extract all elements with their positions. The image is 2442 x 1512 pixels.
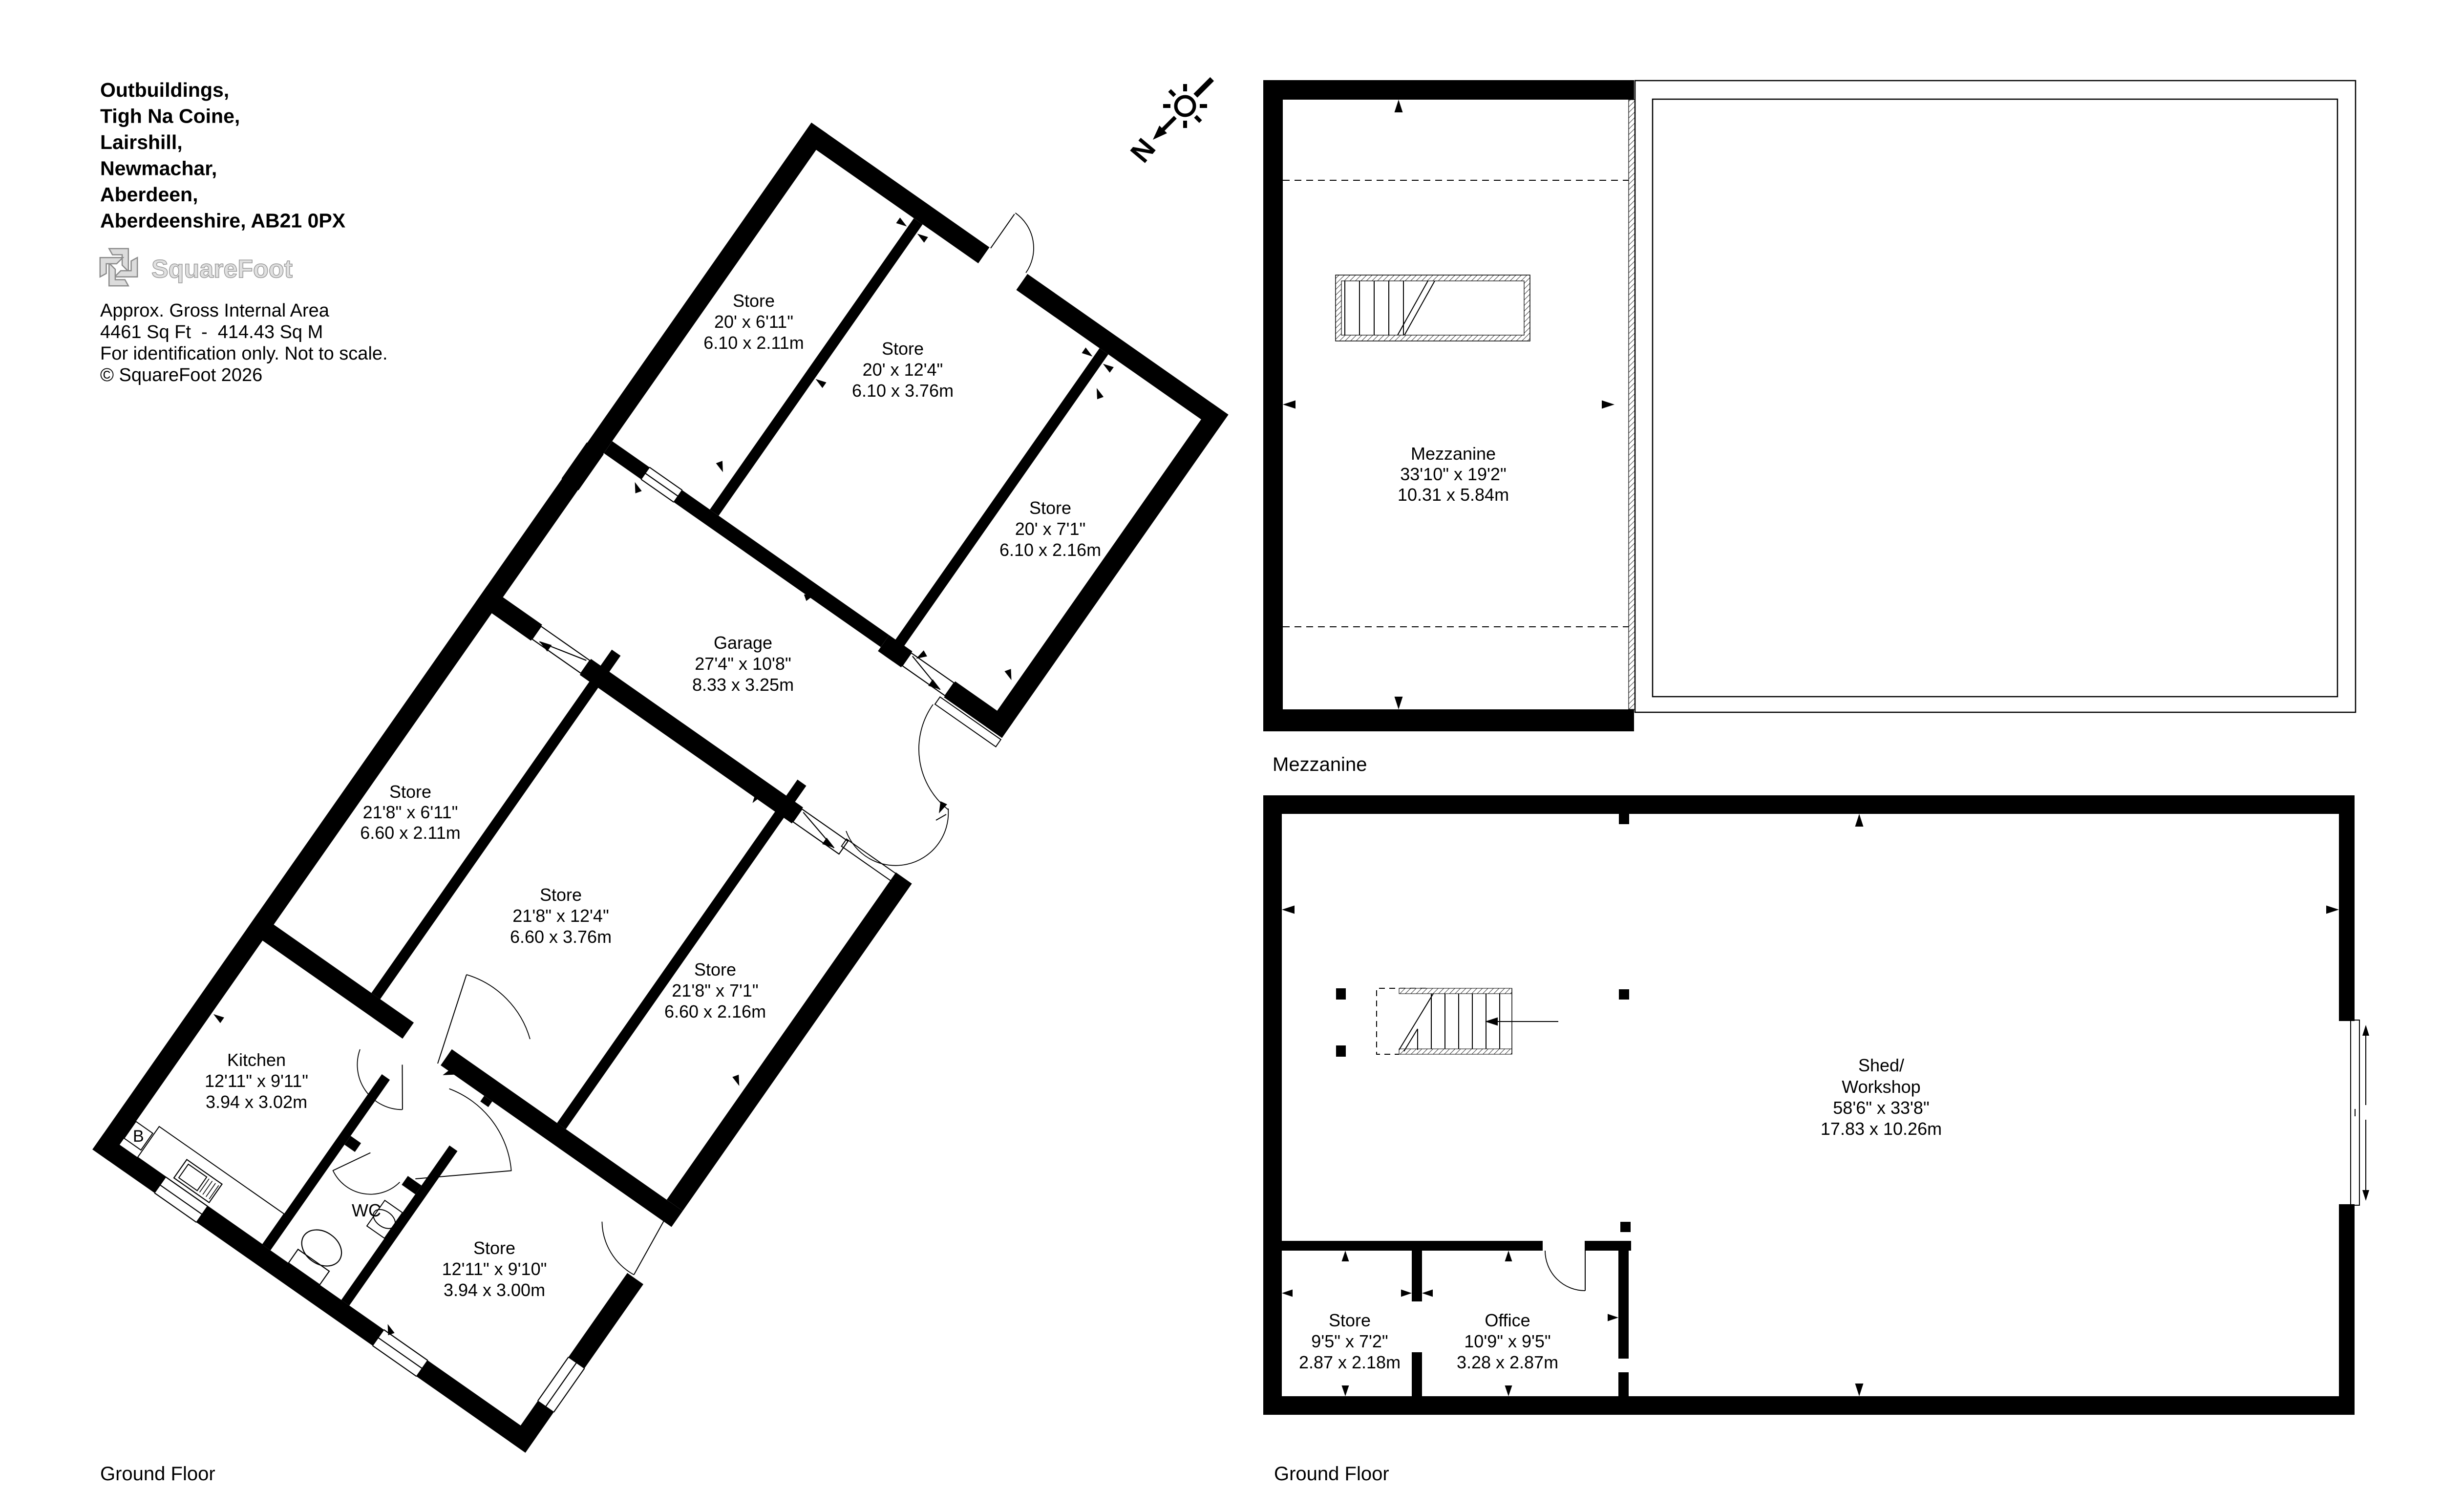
svg-text:Tigh Na Coine,: Tigh Na Coine,	[100, 105, 240, 128]
svg-text:Approx. Gross Internal Area: Approx. Gross Internal Area	[100, 300, 330, 321]
svg-text:58'6" x 33'8": 58'6" x 33'8"	[1833, 1098, 1929, 1118]
svg-text:12'11" x 9'10": 12'11" x 9'10"	[442, 1259, 547, 1279]
svg-text:© SquareFoot 2026: © SquareFoot 2026	[100, 365, 262, 385]
svg-text:Workshop: Workshop	[1842, 1077, 1920, 1097]
svg-text:21'8" x 6'11": 21'8" x 6'11"	[363, 802, 458, 822]
svg-text:10.31 x 5.84m: 10.31 x 5.84m	[1398, 485, 1509, 505]
svg-text:21'8" x 7'1": 21'8" x 7'1"	[672, 980, 758, 1001]
svg-text:3.28 x 2.87m: 3.28 x 2.87m	[1457, 1352, 1558, 1372]
svg-text:4461 Sq Ft - 414.43 Sq M: 4461 Sq Ft - 414.43 Sq M	[100, 322, 323, 342]
svg-text:33'10" x 19'2": 33'10" x 19'2"	[1400, 464, 1506, 484]
svg-text:Lairshill,: Lairshill,	[100, 131, 183, 153]
svg-text:Mezzanine: Mezzanine	[1273, 754, 1367, 775]
svg-text:8.33 x 3.25m: 8.33 x 3.25m	[692, 675, 794, 695]
svg-text:17.83 x 10.26m: 17.83 x 10.26m	[1821, 1119, 1942, 1139]
svg-text:B: B	[133, 1127, 144, 1146]
svg-text:Store: Store	[1329, 1310, 1371, 1330]
svg-text:20' x 6'11": 20' x 6'11"	[714, 312, 793, 332]
svg-text:6.10 x 2.11m: 6.10 x 2.11m	[703, 333, 804, 353]
svg-text:20' x 12'4": 20' x 12'4"	[863, 360, 943, 380]
svg-text:Store: Store	[473, 1238, 515, 1258]
svg-text:3.94 x 3.02m: 3.94 x 3.02m	[206, 1092, 307, 1112]
svg-text:6.60 x 2.11m: 6.60 x 2.11m	[360, 823, 460, 843]
svg-text:Store: Store	[733, 291, 775, 311]
svg-text:Shed/: Shed/	[1858, 1055, 1904, 1075]
svg-text:Aberdeen,: Aberdeen,	[100, 183, 198, 206]
svg-text:Store: Store	[694, 959, 736, 980]
svg-text:6.60 x 2.16m: 6.60 x 2.16m	[664, 1001, 766, 1022]
svg-text:Store: Store	[1029, 498, 1071, 518]
svg-text:Newmachar,: Newmachar,	[100, 157, 217, 180]
svg-text:20' x 7'1": 20' x 7'1"	[1015, 519, 1086, 539]
svg-text:Office: Office	[1485, 1310, 1530, 1330]
svg-text:10'9" x 9'5": 10'9" x 9'5"	[1464, 1331, 1550, 1351]
svg-text:Garage: Garage	[714, 633, 772, 653]
svg-text:2.87 x 2.18m: 2.87 x 2.18m	[1299, 1352, 1401, 1372]
svg-text:3.94 x 3.00m: 3.94 x 3.00m	[444, 1280, 545, 1300]
svg-text:For identification only. Not t: For identification only. Not to scale.	[100, 343, 388, 364]
svg-text:21'8" x 12'4": 21'8" x 12'4"	[512, 906, 609, 926]
svg-text:SquareFoot: SquareFoot	[151, 255, 293, 283]
svg-text:Aberdeenshire, AB21 0PX: Aberdeenshire, AB21 0PX	[100, 210, 345, 232]
svg-text:Kitchen: Kitchen	[227, 1050, 286, 1070]
svg-text:Store: Store	[540, 885, 582, 905]
svg-text:Outbuildings,: Outbuildings,	[100, 79, 229, 101]
svg-text:9'5" x 7'2": 9'5" x 7'2"	[1311, 1331, 1388, 1351]
svg-text:WC: WC	[352, 1200, 381, 1220]
svg-text:Store: Store	[389, 782, 431, 802]
svg-text:Store: Store	[882, 339, 924, 359]
svg-text:6.60 x 3.76m: 6.60 x 3.76m	[510, 927, 612, 947]
svg-text:27'4" x 10'8": 27'4" x 10'8"	[695, 654, 791, 674]
svg-text:Ground Floor: Ground Floor	[100, 1463, 215, 1485]
svg-text:Mezzanine: Mezzanine	[1411, 444, 1496, 464]
svg-text:6.10 x 2.16m: 6.10 x 2.16m	[999, 540, 1101, 560]
svg-text:12'11" x 9'11": 12'11" x 9'11"	[205, 1071, 308, 1091]
svg-text:6.10 x 3.76m: 6.10 x 3.76m	[852, 381, 954, 401]
svg-text:Ground Floor: Ground Floor	[1274, 1463, 1389, 1485]
